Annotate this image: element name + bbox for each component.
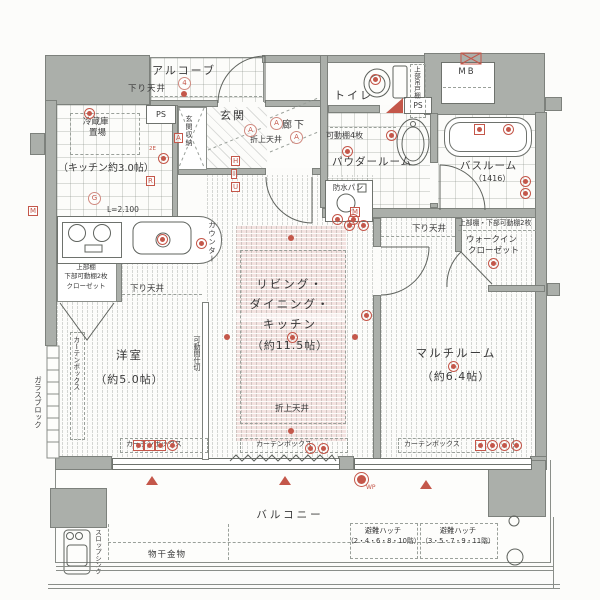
curtain-box-multi-label: カーテンボックス bbox=[404, 440, 460, 448]
outlet-ldk-wall-1-icon bbox=[344, 220, 355, 231]
bathtub bbox=[444, 117, 532, 157]
bath-control-icon bbox=[474, 124, 485, 135]
downlight-ldk-top bbox=[288, 235, 294, 241]
floorplan: PS PS MB 防水パン 上部棚 下部可動棚2枚 クローゼット bbox=[0, 0, 600, 600]
curtain-box-left-label: カーテンボックス bbox=[72, 336, 79, 390]
outlet-western-3-icon bbox=[155, 440, 166, 451]
ceiling-light-4-icon: 4 bbox=[178, 77, 191, 90]
powder-room-label: パウダールーム bbox=[332, 156, 412, 168]
outlet-toilet-icon bbox=[370, 74, 381, 85]
downlight-ldk-bottom bbox=[288, 428, 294, 434]
movable-partition bbox=[202, 302, 209, 460]
wall-top bbox=[262, 55, 432, 63]
outlet-wic-icon bbox=[488, 258, 499, 269]
western-ceiling-label: 下り天井 bbox=[130, 285, 164, 295]
wic-shelf-line bbox=[458, 230, 536, 231]
bath-towel-2-icon bbox=[520, 188, 531, 199]
balcony-partition-left bbox=[50, 488, 107, 528]
wall-top-left-block bbox=[45, 55, 150, 105]
laundry-hardware-label: 物干金物 bbox=[148, 551, 186, 561]
outlet-fridge-icon bbox=[84, 108, 95, 119]
wall-ldk-multi-upper bbox=[373, 218, 381, 247]
glass-block-label: ガラスブロック bbox=[34, 376, 42, 429]
outlet-ldk-curtain-1-icon bbox=[305, 443, 316, 454]
outlet-kitchen-2e-icon bbox=[158, 153, 169, 164]
window-pier-left bbox=[55, 456, 112, 470]
counter-length-label: L=2.100 bbox=[107, 206, 139, 215]
balcony-label: バルコニー bbox=[240, 509, 340, 521]
bath-shower-icon bbox=[503, 124, 514, 135]
balcony-mark-2-icon bbox=[279, 476, 291, 485]
hatch-1-label: 避難ハッチ bbox=[350, 527, 416, 535]
fridge-label-2: 置場 bbox=[89, 129, 106, 139]
powder-shelf-line bbox=[330, 127, 396, 128]
wic-label-2: クローゼット bbox=[468, 247, 519, 257]
outlet-ldk-wall-2-icon bbox=[358, 220, 369, 231]
closet-shelf-label-3: クローゼット bbox=[58, 283, 114, 290]
outlet-pan-1-icon bbox=[332, 214, 343, 225]
balcony-window-left bbox=[112, 458, 340, 470]
balcony-window-right bbox=[354, 458, 532, 470]
wall-left-stub bbox=[30, 133, 45, 155]
closet-shelf-label-1: 上部棚 bbox=[58, 264, 114, 271]
ldk-ceiling-label: 折上天井 bbox=[240, 405, 344, 415]
light-multi-icon bbox=[448, 361, 459, 372]
outlet-powder-2-icon bbox=[342, 146, 353, 157]
downlight-ldk-right bbox=[352, 334, 358, 340]
outlet-multi-2-icon bbox=[487, 440, 498, 451]
meter-box-dashed-line bbox=[443, 87, 491, 88]
marker-i: I bbox=[231, 169, 237, 179]
outlet-counter-icon bbox=[196, 238, 207, 249]
wall-right-bump bbox=[547, 283, 560, 296]
window-pier-center bbox=[338, 456, 354, 470]
wall-wic-bottom bbox=[488, 285, 545, 292]
entrance-storage-label: 玄関収納 bbox=[185, 115, 192, 147]
entrance-label: 玄関 bbox=[220, 110, 246, 123]
laundry-tick-1 bbox=[108, 524, 109, 560]
stove bbox=[62, 222, 122, 258]
outlet-multi-3-icon bbox=[499, 440, 510, 451]
hatch-2-floors: （3・5・7・9・11階） bbox=[417, 538, 499, 546]
wall-top-right-bump bbox=[545, 97, 562, 111]
marker-2e: 2E bbox=[149, 146, 156, 152]
curtain-box-ldk-label: カーテンボックス bbox=[256, 440, 312, 448]
balcony-rail-line-2 bbox=[56, 570, 554, 571]
multi-ceiling-line bbox=[381, 236, 455, 237]
bathroom-label: バスルーム bbox=[460, 160, 517, 172]
wp-faucet-icon bbox=[354, 472, 369, 487]
wall-toilet-bottom-left bbox=[328, 105, 380, 113]
outlet-multi-1-icon bbox=[475, 440, 486, 451]
hatch-2-label: 避難ハッチ bbox=[420, 527, 496, 535]
ceiling-mark-a2-icon: A bbox=[270, 117, 283, 130]
ldk-label-3: キッチン bbox=[210, 318, 370, 331]
outlet-multi-wall-icon bbox=[361, 310, 372, 321]
laundry-tick-2 bbox=[228, 524, 229, 560]
outlet-ldk-curtain-2-icon bbox=[318, 443, 329, 454]
toilet-label: トイレ bbox=[334, 90, 373, 103]
alcove-ceiling-line bbox=[150, 96, 262, 97]
multi-room-size-label: （約6.4帖） bbox=[381, 371, 531, 384]
kitchen-label: （キッチン約3.0帖） bbox=[58, 163, 154, 175]
balcony-edge-line-1 bbox=[48, 584, 560, 585]
hall-ceiling-label: 折上天井 bbox=[250, 135, 282, 144]
wall-left bbox=[45, 100, 57, 346]
alcove-ceiling-label: 下り天井 bbox=[128, 85, 166, 95]
marker-h: H bbox=[231, 156, 240, 166]
outlet-western-2-icon bbox=[144, 440, 155, 451]
balcony-mark-3-icon bbox=[420, 480, 432, 489]
marker-r: R bbox=[146, 176, 155, 186]
downlight-ldk-left bbox=[224, 334, 230, 340]
multi-room-label: マルチルーム bbox=[381, 347, 531, 360]
corridor-label: 廊下 bbox=[282, 120, 306, 132]
ceiling-mark-a3-icon: A bbox=[290, 131, 303, 144]
outlet-powder-1-icon bbox=[386, 130, 397, 141]
counter-label: カウンター bbox=[208, 221, 216, 264]
fridge-label-1: 冷蔵庫 bbox=[83, 118, 109, 128]
slop-sink-label: スロップシンク bbox=[94, 529, 101, 575]
outlet-sink-icon bbox=[157, 234, 168, 245]
powder-shelf-label: 可動棚4枚 bbox=[326, 131, 363, 140]
closet-shelf-label-2: 下部可動棚2枚 bbox=[58, 273, 114, 280]
marker-a: A bbox=[174, 133, 183, 143]
balcony-edge-line-2 bbox=[48, 588, 560, 589]
ceiling-mark-a1-icon: A bbox=[244, 124, 257, 137]
outlet-western-1-icon bbox=[133, 440, 144, 451]
partition-label: 可動間仕切 bbox=[193, 336, 200, 371]
alcove-label: アルコーブ bbox=[152, 65, 216, 78]
bathroom-size-label: （1416） bbox=[474, 174, 510, 183]
ldk-label-2: ダイニング・ bbox=[210, 298, 370, 311]
hatch-1-floors: （2・4・6・8・10階） bbox=[347, 538, 419, 546]
washer-pan-label: 防水パン bbox=[325, 184, 371, 193]
marker-u: U bbox=[231, 182, 240, 192]
meter-box-label: MB bbox=[441, 68, 493, 78]
ps-box-kitchen: PS bbox=[146, 105, 176, 124]
wall-alcove-bottom-right bbox=[265, 100, 324, 107]
light-dot-alcove bbox=[181, 91, 187, 97]
balcony-right-edge bbox=[553, 517, 554, 589]
wall-ldk-multi-lower bbox=[373, 295, 381, 460]
marker-g-icon: G bbox=[88, 192, 101, 205]
outlet-multi-4-icon bbox=[511, 440, 522, 451]
multi-ceiling-label: 下り天井 bbox=[412, 225, 446, 235]
corridor-floor bbox=[268, 63, 320, 168]
light-ldk-center-icon bbox=[287, 332, 298, 343]
balcony-rail-line-1 bbox=[56, 566, 554, 567]
wall-bath-left-upper bbox=[430, 113, 438, 163]
wic-shelf-label: 上部棚・下部可動棚2枚 bbox=[459, 220, 531, 228]
outlet-western-4-icon bbox=[167, 440, 178, 451]
hanging-cabinet-label: 上部吊戸棚 bbox=[413, 66, 420, 99]
bath-towel-1-icon bbox=[520, 176, 531, 187]
wp-label: WP bbox=[366, 485, 376, 492]
wic-label-1: ウォークイン bbox=[466, 236, 517, 246]
ldk-label-1: リビング・ bbox=[210, 278, 370, 291]
balcony-mark-1-icon bbox=[146, 476, 158, 485]
marker-m-left: M bbox=[28, 206, 38, 216]
